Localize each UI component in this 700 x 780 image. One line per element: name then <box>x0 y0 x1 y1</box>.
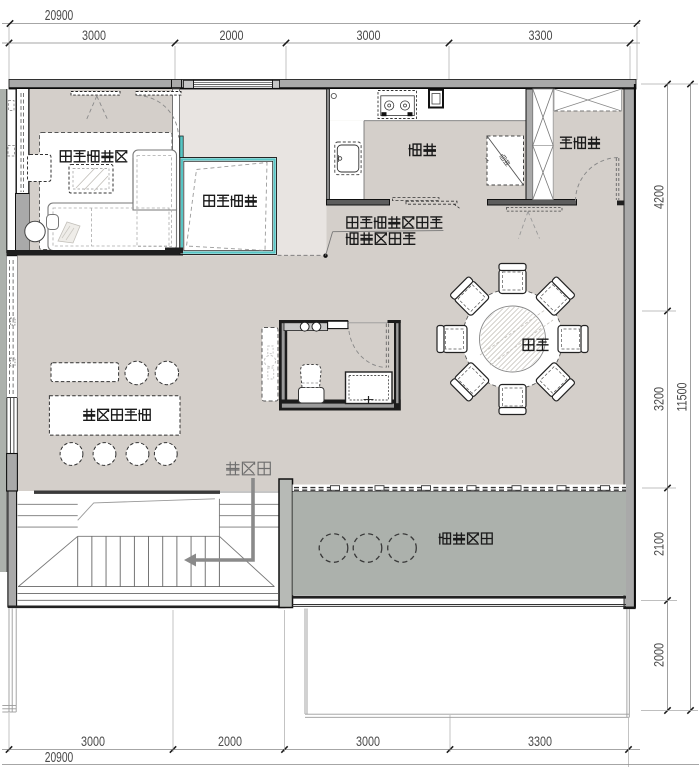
svg-text:11500: 11500 <box>675 382 690 411</box>
svg-text:3000: 3000 <box>81 734 105 749</box>
svg-text:3000: 3000 <box>356 734 380 749</box>
svg-text:3300: 3300 <box>528 734 552 749</box>
svg-text:2100: 2100 <box>652 532 667 556</box>
svg-text:3200: 3200 <box>652 387 667 411</box>
svg-text:2000: 2000 <box>220 28 244 43</box>
svg-text:3300: 3300 <box>529 28 553 43</box>
svg-text:20900: 20900 <box>45 7 74 24</box>
svg-text:2000: 2000 <box>218 734 242 749</box>
svg-text:20900: 20900 <box>45 749 74 766</box>
svg-text:3000: 3000 <box>357 28 381 43</box>
svg-text:4200: 4200 <box>652 185 667 209</box>
svg-text:3000: 3000 <box>82 28 106 43</box>
svg-text:2000: 2000 <box>652 643 667 667</box>
